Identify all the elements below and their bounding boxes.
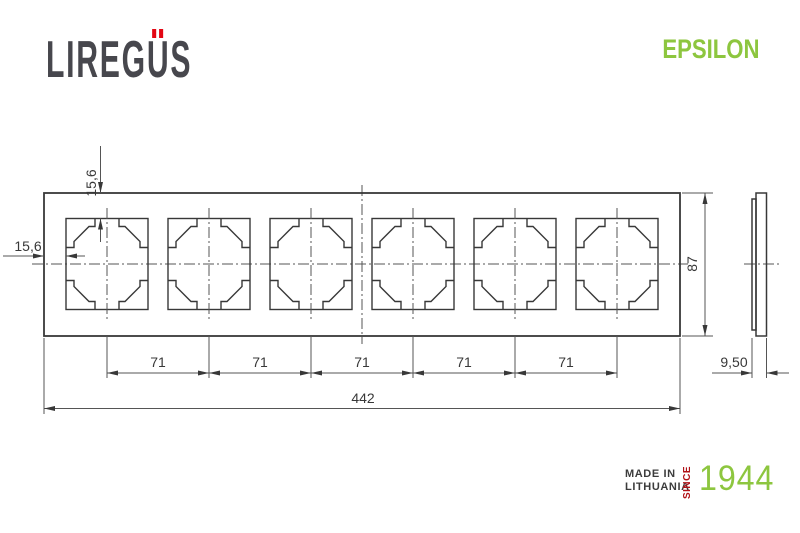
- opening-corner-notch: [425, 219, 454, 248]
- dim-label-pitch: 71: [354, 354, 370, 370]
- dim-label-depth: 9,50: [720, 354, 747, 370]
- arrowhead-icon: [107, 371, 118, 376]
- opening-corner-notch: [629, 219, 658, 248]
- founded-year: 1944: [699, 459, 774, 499]
- opening-corner-notch: [119, 219, 148, 248]
- dim-label-top-inset: 15,6: [83, 169, 99, 196]
- arrowhead-icon: [402, 371, 413, 376]
- opening-corner-notch: [221, 219, 250, 248]
- arrowhead-icon: [606, 371, 617, 376]
- opening-corner-notch: [119, 281, 148, 310]
- dim-label-pitch: 71: [252, 354, 268, 370]
- page: LIREGUS EPSILON: [0, 0, 800, 533]
- opening-corner-notch: [372, 281, 401, 310]
- opening-corner-notch: [527, 219, 556, 248]
- arrowhead-icon: [515, 371, 526, 376]
- dimension-top-inset: 15,6: [83, 146, 103, 242]
- opening-corner-notch: [629, 281, 658, 310]
- opening-corner-notch: [270, 281, 299, 310]
- opening-corner-notch: [168, 219, 197, 248]
- arrowhead-icon: [300, 371, 311, 376]
- centerlines: [32, 185, 780, 344]
- dim-label-pitch: 71: [456, 354, 472, 370]
- opening-corner-notch: [221, 281, 250, 310]
- dim-label-total-width: 442: [351, 390, 375, 406]
- opening-corner-notch: [527, 281, 556, 310]
- dim-label-left-inset: 15,6: [14, 238, 41, 254]
- arrowhead-icon: [504, 371, 515, 376]
- opening-corner-notch: [323, 219, 352, 248]
- opening-corner-notch: [425, 281, 454, 310]
- dimension-depth: 9,50: [712, 338, 789, 378]
- opening-corner-notch: [474, 219, 503, 248]
- opening-corner-notch: [168, 281, 197, 310]
- opening-corner-notch: [323, 281, 352, 310]
- opening-corner-notch: [576, 281, 605, 310]
- opening-corner-notch: [66, 281, 95, 310]
- dim-label-pitch: 71: [150, 354, 166, 370]
- opening-corner-notch: [474, 281, 503, 310]
- dim-label-height: 87: [684, 256, 700, 272]
- arrowhead-icon: [413, 371, 424, 376]
- dim-label-pitch: 71: [558, 354, 574, 370]
- opening-corner-notch: [372, 219, 401, 248]
- opening-corner-notch: [576, 219, 605, 248]
- opening-corner-notch: [270, 219, 299, 248]
- arrowhead-icon: [209, 371, 220, 376]
- technical-drawing: 15,6 15,6 7171717171: [0, 0, 800, 533]
- arrowhead-icon: [198, 371, 209, 376]
- opening-corner-notch: [66, 219, 95, 248]
- dimension-height: 87: [682, 193, 713, 336]
- dimension-total-width: 442: [44, 338, 680, 414]
- arrowhead-icon: [311, 371, 322, 376]
